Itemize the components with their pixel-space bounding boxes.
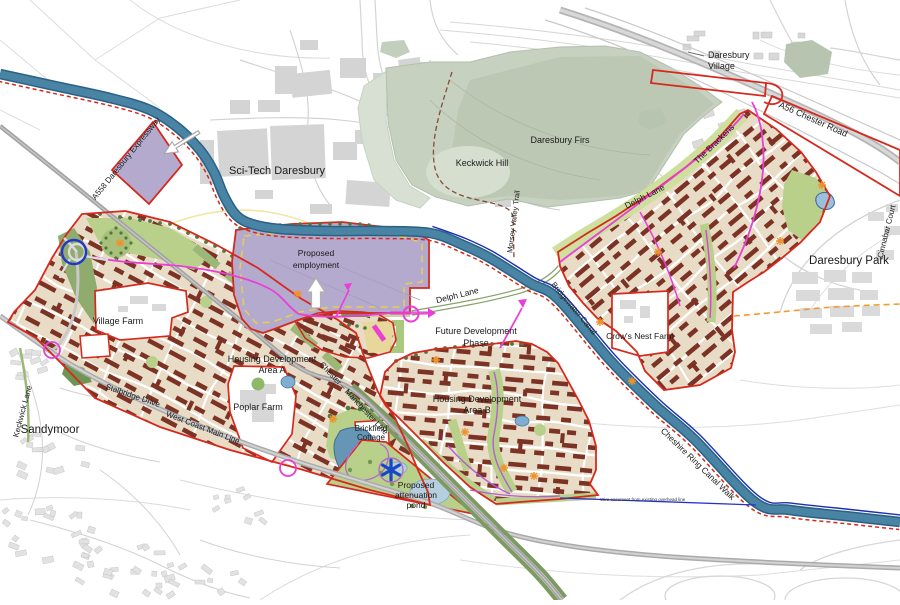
svg-text:Housing Development: Housing Development [228,354,317,364]
svg-text:Village Farm: Village Farm [93,316,143,326]
svg-text:Area B: Area B [463,405,491,415]
svg-text:Daresbury: Daresbury [708,50,750,60]
svg-text:Crow's Nest Farm: Crow's Nest Farm [606,331,674,341]
svg-text:Housing Development: Housing Development [433,394,522,404]
svg-text:employment: employment [293,260,340,270]
svg-text:Cottage: Cottage [357,433,386,442]
svg-text:Daresbury Firs: Daresbury Firs [530,135,590,145]
svg-text:Proposed: Proposed [298,248,335,258]
svg-text:pond: pond [407,500,426,510]
svg-text:Proposed: Proposed [398,480,435,490]
svg-text:attenuation: attenuation [395,490,437,500]
svg-text:Village: Village [708,61,735,71]
svg-text:Wire easement from existing ov: Wire easement from existing overhead lin… [600,497,686,502]
svg-text:Phase: Phase [463,338,489,348]
svg-text:Brickfield: Brickfield [355,424,387,433]
svg-text:Future Development: Future Development [435,326,517,336]
svg-text:Keckwick Hill: Keckwick Hill [456,158,509,168]
svg-text:Poplar Farm: Poplar Farm [233,402,283,412]
svg-text:Sci-Tech Daresbury: Sci-Tech Daresbury [229,165,325,177]
svg-text:Sandymoor: Sandymoor [21,424,80,436]
svg-text:Area A: Area A [258,365,285,375]
